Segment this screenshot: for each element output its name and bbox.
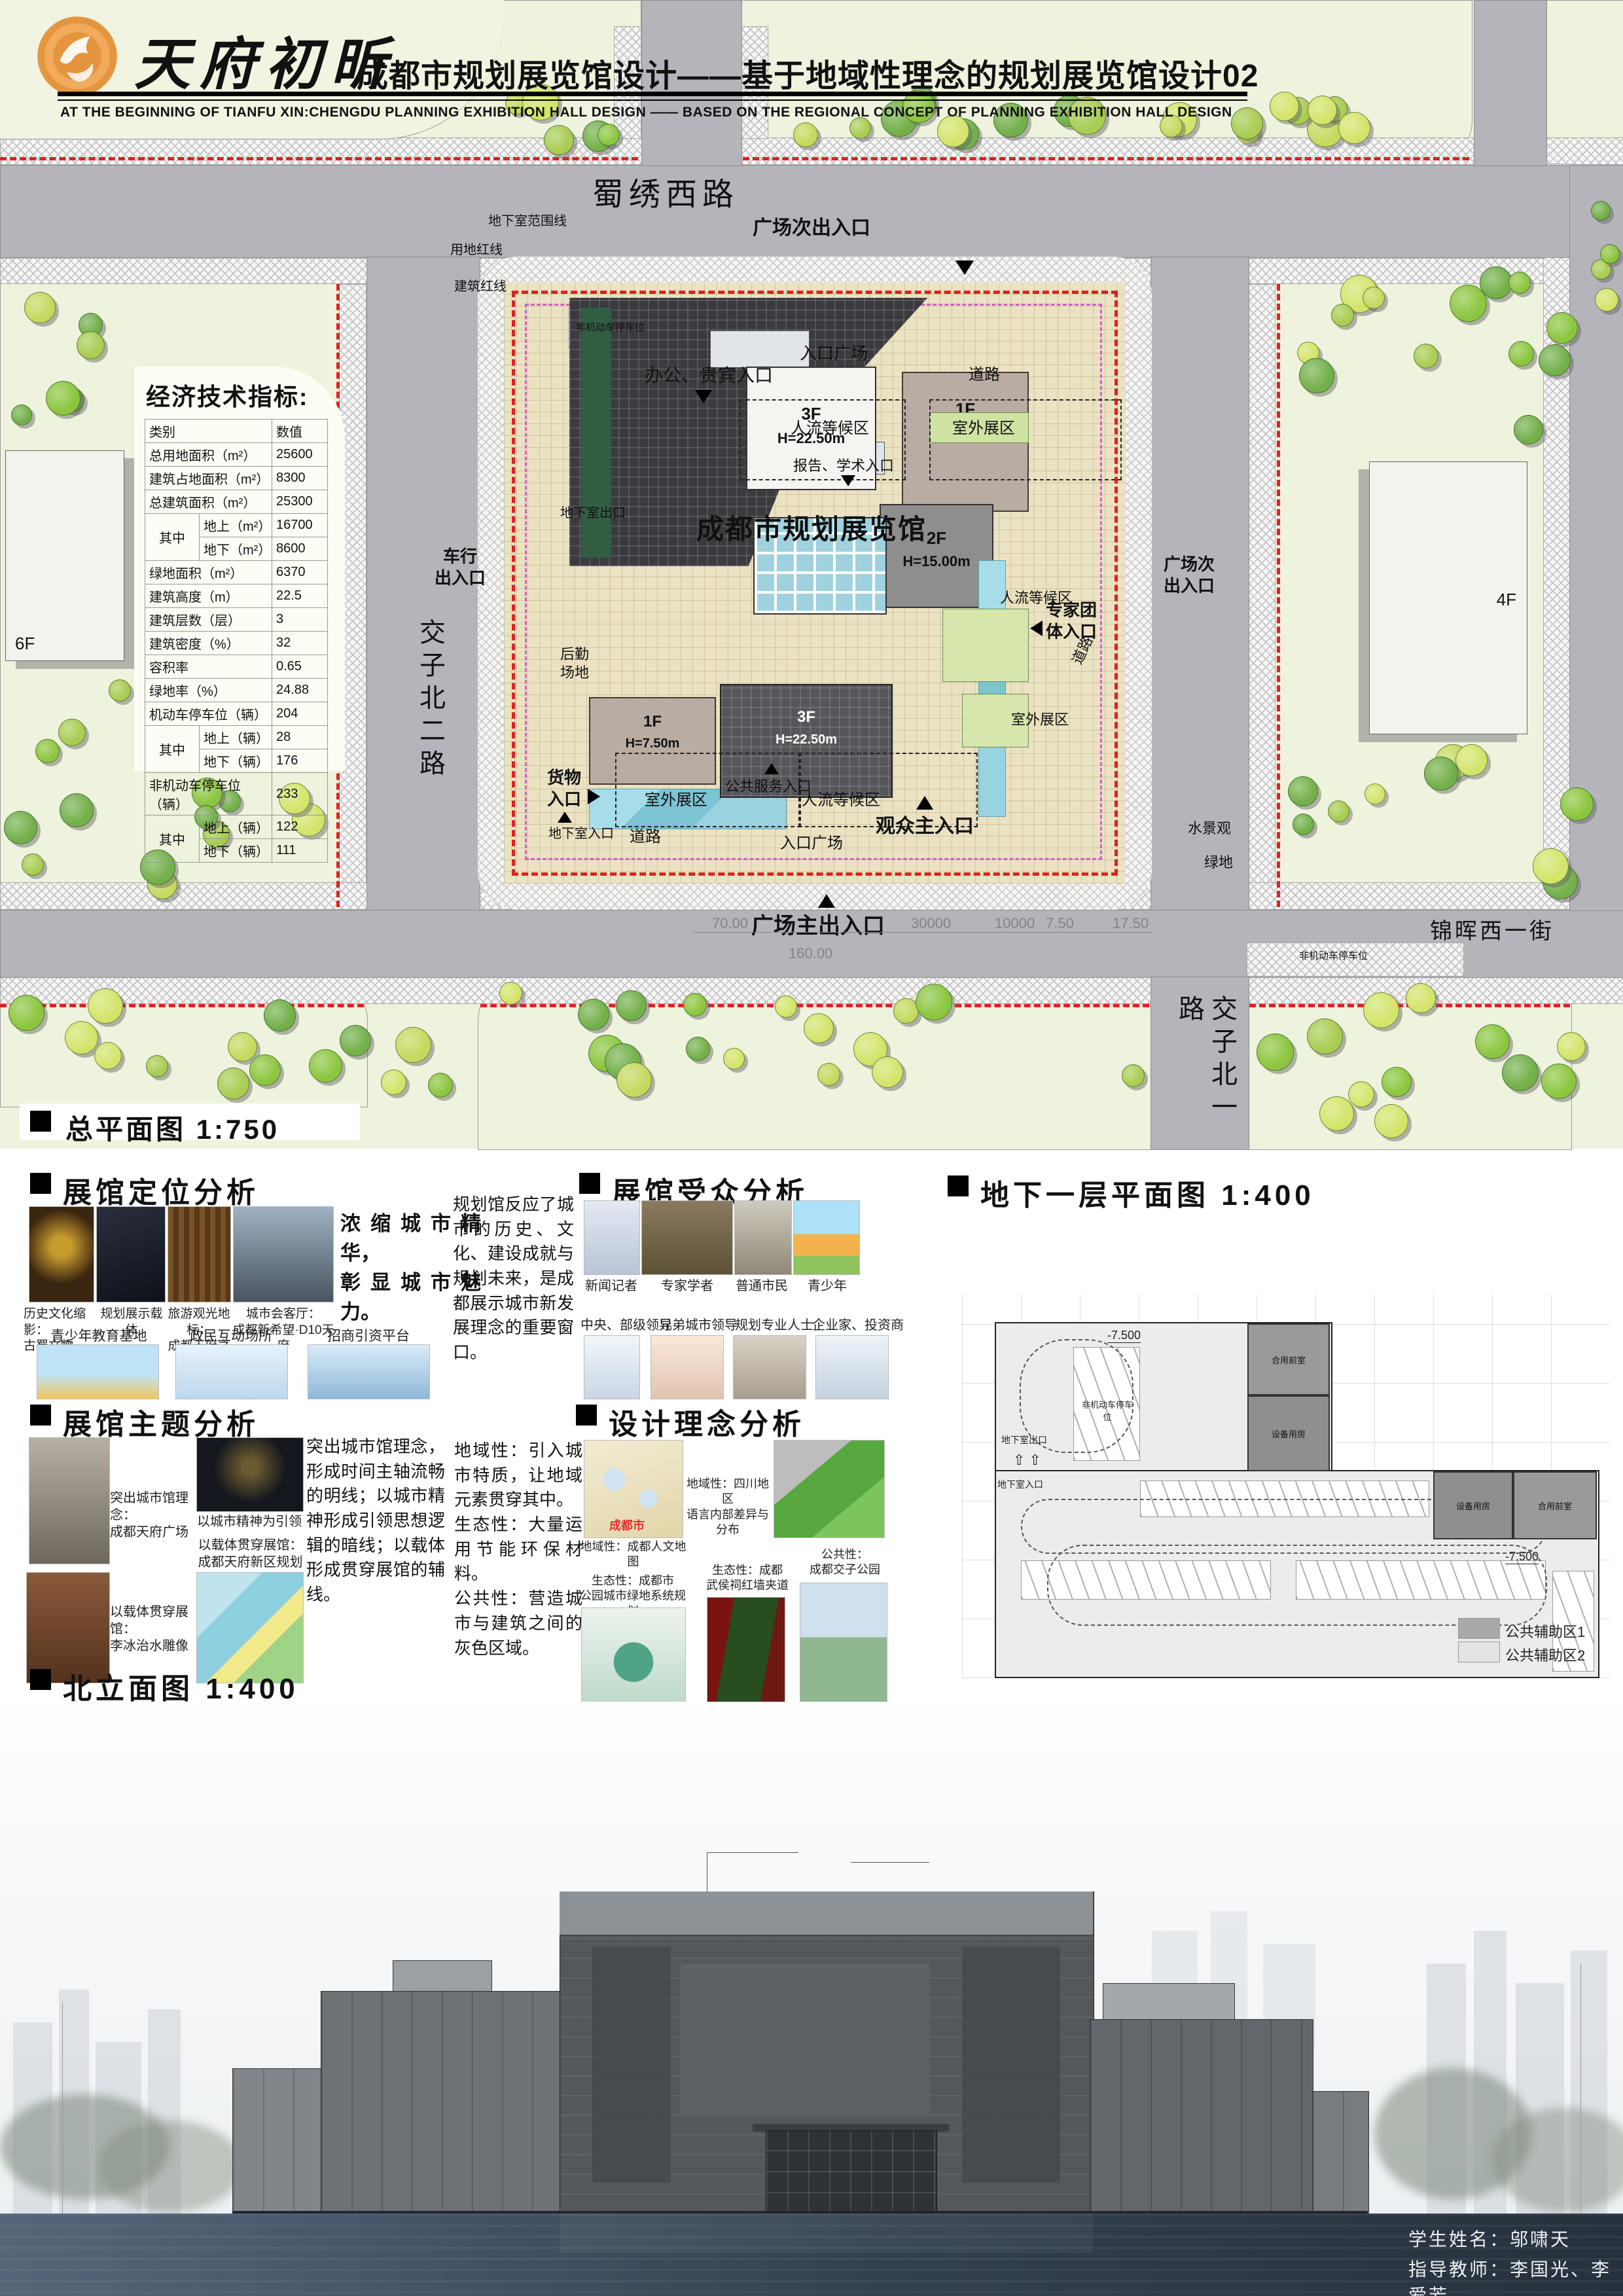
row-label: 绿地面积（m²） — [145, 561, 272, 584]
caption: 青少年教育基地 — [43, 1327, 154, 1345]
tree — [1308, 96, 1337, 125]
row-label: 非机动车停车位（辆） — [145, 773, 272, 816]
basement-title: 地下一层平面图 1:400 — [980, 1172, 1315, 1213]
tree — [775, 996, 797, 1018]
tree — [793, 122, 818, 147]
table-row: 非机动车停车位（辆）233 — [145, 773, 328, 816]
row-label: 地下（m²） — [200, 537, 272, 561]
tree — [1595, 288, 1618, 312]
tree — [1600, 244, 1620, 264]
section-bullet — [579, 1173, 600, 1194]
caption: 以载体贯穿展馆： 李冰治水雕像 — [110, 1604, 196, 1655]
legend-label: 公共辅助区1 — [1505, 1621, 1585, 1641]
tree — [1450, 285, 1487, 322]
row-value: 122 — [272, 816, 328, 839]
photo-youth-education — [37, 1344, 159, 1399]
theme-text: 突出城市馆理念，形成时间主轴流畅的明线；以城市精神形成引领思想逻辑的暗线；以载体… — [306, 1435, 445, 1607]
dimension: 10000 — [995, 915, 1035, 932]
row-value: 25600 — [272, 443, 328, 467]
tree — [381, 1069, 406, 1095]
main-building-name: 成都市规划展览馆 — [694, 507, 929, 547]
entrance-arrow-icon — [695, 390, 712, 403]
caption: 地域性：四川地区 语言内部差异与分布 — [685, 1477, 771, 1538]
row-label: 建筑高度（m） — [145, 584, 272, 608]
chengdu-tag: 成都市 — [609, 1516, 645, 1534]
tree — [22, 853, 44, 876]
dimension-line — [62, 2003, 63, 2214]
basement-exit-label: 地下室出口 — [1001, 1433, 1047, 1446]
photo-sichuan-language-map — [774, 1440, 885, 1538]
row-label: 绿地率（%） — [145, 679, 272, 702]
tree — [94, 1042, 122, 1069]
tree — [1293, 814, 1314, 835]
row-label: 地下（辆） — [200, 839, 272, 863]
photo-green-system-plan — [581, 1607, 686, 1707]
tree — [817, 1063, 840, 1086]
tree — [60, 793, 94, 827]
room-shared-lobby: 合用前室 — [1513, 1471, 1597, 1539]
water-feature-label: 水景观 — [1188, 819, 1231, 838]
elevation-wing-far-right — [1312, 2091, 1369, 2215]
plaza-main-exit-label: 广场主出入口 — [751, 912, 885, 941]
theme-title: 展馆主题分析 — [63, 1401, 259, 1443]
col-header: 数值 — [272, 420, 328, 443]
room-equipment: 设备用房 — [1433, 1471, 1513, 1539]
photo-teenagers — [793, 1200, 860, 1275]
row-value: 16700 — [272, 514, 328, 537]
row-value: 32 — [272, 632, 328, 655]
tree — [1299, 358, 1334, 393]
elevation-roof-box-right — [1103, 1983, 1235, 2022]
dimension: 30000 — [911, 915, 951, 932]
outdoor-zone-label: 室外展区 — [952, 419, 1015, 439]
table-row: 总用地面积（m²）25600 — [145, 443, 328, 467]
elevation-wing-far-left — [232, 2068, 322, 2215]
entrance-arrow-icon — [916, 796, 933, 810]
tree — [1502, 1054, 1539, 1091]
basement-exit-label: 地下室出口 — [560, 505, 626, 522]
row-value: 3 — [272, 608, 328, 632]
section-bullet — [30, 1405, 51, 1426]
legend-swatch-aux2 — [1458, 1641, 1500, 1662]
room-shared-lobby: 合用前室 — [1247, 1323, 1330, 1395]
mass-height: H=15.00m — [881, 553, 992, 570]
basement-entry-label: 地下室入口 — [548, 826, 614, 842]
photo-red-wall — [707, 1597, 785, 1707]
public-service-entry-label: 公共服务入口 — [725, 778, 811, 796]
photo-citizens — [734, 1200, 792, 1275]
tree — [1348, 1081, 1374, 1107]
row-value: 22.5 — [272, 584, 328, 608]
tree — [1331, 304, 1354, 327]
neighbor-building-4f: 4F — [1369, 461, 1527, 734]
elevation-roof-box-left — [393, 1960, 492, 1994]
drive-lane — [1047, 1545, 1547, 1626]
row-label: 机动车停车位（辆） — [145, 702, 272, 726]
bike-parking-label: 非机动车停车位 — [576, 322, 645, 334]
tree — [1424, 757, 1458, 791]
photo-chengdu-life — [96, 1206, 166, 1302]
row-value: 8300 — [272, 467, 328, 490]
tree — [65, 1021, 98, 1054]
section-bullet — [576, 1405, 597, 1426]
tree — [544, 125, 574, 155]
tree — [1533, 848, 1569, 884]
row-label: 地下（辆） — [200, 749, 272, 773]
photo-city-lounge — [233, 1206, 334, 1302]
photo-investment-platform — [308, 1344, 430, 1399]
row-value: 204 — [272, 702, 328, 726]
row-value: 24.88 — [272, 679, 328, 702]
page-title: 成都市规划展览馆设计——基于地域性理念的规划展览馆设计02 — [357, 50, 1258, 96]
tree — [77, 331, 105, 359]
tree — [1288, 776, 1318, 806]
caption: 兄弟城市领导 — [656, 1317, 741, 1334]
logistics-yard-label: 后勤 场地 — [560, 645, 589, 681]
title-rule — [58, 92, 1247, 96]
row-value: 6370 — [272, 561, 328, 584]
row-label: 地上（辆） — [200, 726, 272, 749]
mass-floor: 3F — [721, 708, 891, 726]
tree — [616, 1062, 652, 1098]
bike-parking-label: 非机动车停车位 — [1299, 950, 1368, 963]
tree — [264, 999, 296, 1031]
road-label: 道路 — [630, 827, 661, 847]
dimension: 160.00 — [789, 945, 832, 962]
tree — [723, 1048, 745, 1069]
dimension: 7.50 — [1046, 915, 1074, 932]
caption: 招商引资平台 — [319, 1327, 418, 1345]
row-group: 其中 — [145, 514, 200, 561]
caption: 生态性：成都 武侯祠红墙夹道 — [702, 1563, 793, 1594]
tree — [9, 995, 45, 1031]
neighbor-building-6f: 6F — [5, 450, 124, 661]
road-label: 道路 — [969, 365, 1000, 385]
tree — [1364, 783, 1385, 804]
tree — [916, 984, 952, 1020]
basement-entry-label: 地下室入口 — [997, 1478, 1043, 1491]
elevation-title: 北立面图 1:400 — [63, 1665, 299, 1707]
entrance-label: 广场次出入口 — [753, 216, 870, 241]
positioning-title: 展馆定位分析 — [63, 1169, 259, 1211]
green-space-label: 绿地 — [1204, 853, 1233, 872]
caption: 普通市民 — [728, 1278, 796, 1295]
waiting-zone-label: 人流等候区 — [802, 791, 880, 810]
plaza-sub-exit-right-label: 广场次 出入口 — [1164, 554, 1215, 596]
elevation-window-strip — [962, 1947, 1060, 2183]
waiting-zone-label: 人流等候区 — [1000, 589, 1072, 607]
photo-central-leaders — [584, 1335, 640, 1399]
tree — [1363, 992, 1399, 1028]
bike-parking-label: 非机动车停车位 — [1081, 1398, 1133, 1423]
row-value: 176 — [272, 749, 328, 773]
table-row: 绿地面积（m²）6370 — [145, 561, 328, 584]
dimension-line — [694, 932, 1152, 933]
tree — [88, 988, 123, 1024]
row-label: 总用地面积（m²） — [145, 443, 272, 467]
caption: 新闻记者 — [577, 1278, 645, 1295]
tree — [1546, 312, 1578, 344]
caption: 公共性： 成都交子公园 — [802, 1547, 887, 1578]
caption: 青少年 — [800, 1278, 855, 1295]
photo-culture-map: 成都市 — [584, 1440, 683, 1538]
tree — [11, 404, 32, 425]
annotation-leader — [707, 1852, 707, 1892]
audience-intro: 规划馆反应了城市的历史、文化、建设成就与规划未来，是成都展示城市新发展理念的重要… — [453, 1193, 574, 1365]
row-label: 建筑密度（%） — [145, 632, 272, 655]
caption: 专家学者 — [653, 1278, 721, 1295]
tree — [1475, 1024, 1510, 1059]
table-row: 建筑密度（%）32 — [145, 632, 328, 655]
tree — [1560, 787, 1594, 821]
tree — [597, 124, 620, 146]
level-mark: -7.500 — [1107, 1329, 1141, 1343]
concept-text: 地域性：引入城市特质，让地域元素贯穿其中。 生态性：大量运用节能环保材料。 公共… — [454, 1439, 582, 1660]
vehicle-entry-label: 车行 出入口 — [435, 546, 486, 588]
tree — [1122, 1064, 1145, 1087]
tree — [1319, 1096, 1354, 1131]
visitor-main-entry-label: 观众主入口 — [876, 814, 974, 839]
outdoor-zone-label: 室外展区 — [645, 791, 707, 810]
photo-city-spirit-plaque — [196, 1437, 304, 1512]
tree — [1338, 112, 1370, 144]
caption: 以城市精神为引领 — [196, 1513, 302, 1530]
photo-jiaozi-park — [800, 1583, 887, 1707]
elevation-wing-right — [1090, 2019, 1313, 2215]
north-elevation-drawing — [0, 1702, 1623, 2214]
road-name-east: 交子北一路 — [1173, 995, 1238, 1149]
building-floor-label: 6F — [15, 634, 35, 654]
tree — [1557, 1032, 1586, 1061]
entry-plaza-label: 入口广场 — [780, 834, 843, 853]
tree — [217, 1067, 249, 1100]
tree — [616, 990, 647, 1021]
elevation-parapet-band — [560, 1892, 1093, 1935]
tree — [578, 999, 609, 1030]
legend-label: 公共辅助区2 — [1505, 1644, 1585, 1665]
tree — [428, 1073, 453, 1098]
table-row: 绿地率（%）24.88 — [145, 679, 328, 702]
photo-entrepreneurs — [815, 1335, 889, 1399]
legend-swatch-aux1 — [1458, 1618, 1500, 1639]
elevation-window-strip — [592, 1947, 671, 2183]
caption: 地域性：成都人文地图 — [576, 1539, 690, 1570]
site-plan-title: 总平面图 1:750 — [65, 1107, 279, 1147]
entrance-arrow-icon — [588, 789, 600, 804]
planter — [942, 609, 1029, 682]
row-label: 总建筑面积（m²） — [145, 490, 272, 514]
section-bullet — [30, 1111, 51, 1132]
tree — [872, 1056, 903, 1088]
road-name-south: 锦晖西一街 — [1430, 918, 1554, 946]
entrance-canopy — [710, 331, 810, 368]
row-group: 其中 — [145, 816, 200, 863]
photo-relic — [29, 1206, 94, 1302]
road-name-west: 交子北二路 — [414, 619, 446, 782]
row-group: 其中 — [145, 726, 200, 773]
mass-floor: 1F — [590, 713, 715, 731]
tree — [4, 811, 37, 844]
entrance-arrow-icon — [1030, 620, 1043, 636]
table-row: 建筑层数（层）3 — [145, 608, 328, 632]
entrance-arrow-icon — [955, 260, 974, 275]
tree — [1414, 344, 1438, 368]
office-vip-entry-label: 办公、贵宾入口 — [645, 364, 773, 387]
land-redline-label: 用地红线 — [450, 242, 503, 259]
tree — [46, 381, 80, 416]
building-floor-label: 4F — [1497, 590, 1516, 610]
tree — [1541, 1064, 1577, 1099]
title-rule-thin — [58, 99, 1247, 101]
table-row: 建筑高度（m）22.5 — [145, 584, 328, 608]
table-row: 总建筑面积（m²）25300 — [145, 490, 328, 514]
mass-height: H=22.50m — [721, 732, 891, 747]
goods-entry-label: 货物 入口 — [547, 767, 581, 810]
watercolor-tree — [1492, 2108, 1623, 2212]
entrance-arrow-icon — [818, 894, 835, 908]
row-value: 25300 — [272, 490, 328, 514]
ramp-arrows-icon: ⇧ ⇧ — [1013, 1452, 1041, 1469]
econ-table-title: 经济技术指标: — [146, 377, 337, 412]
tree — [1374, 1104, 1408, 1138]
row-value: 233 — [272, 773, 328, 816]
photo-planning-professionals — [733, 1335, 806, 1399]
photo-tianfu-square — [29, 1437, 110, 1564]
section-bullet — [948, 1175, 969, 1196]
caption: 企业家、投资商 — [809, 1317, 907, 1334]
tree — [1539, 344, 1571, 376]
photo-experts — [641, 1200, 733, 1275]
tree — [228, 1032, 257, 1062]
tree — [249, 1054, 281, 1086]
road-name-north: 蜀绣西路 — [592, 175, 739, 215]
tree — [1307, 1018, 1343, 1054]
presentation-board: 6F 4F 3F H=22.50m 1F H=7.50m — [0, 0, 1623, 2296]
basement-extent-label: 地下室范围线 — [488, 213, 567, 230]
ground-water-band: 学生姓名：邬啸天 指导教师：李国光、李爱芳 — [0, 2214, 1623, 2296]
entrance-arrow-icon — [764, 763, 779, 774]
photo-sister-city-leaders — [651, 1335, 724, 1399]
dimension: 17.50 — [1113, 915, 1149, 932]
caption: 突出城市馆理念： 成都天府广场 — [110, 1490, 196, 1541]
tree — [804, 1013, 834, 1043]
tree — [1270, 92, 1299, 121]
tree — [395, 1027, 431, 1063]
entrance-arrow-icon — [558, 812, 572, 823]
photo-civic-interaction — [175, 1344, 288, 1399]
entry-plaza-label: 入口广场 — [800, 343, 868, 365]
elevation-wing-left — [321, 1991, 564, 2215]
dimension-line — [1580, 1964, 1581, 2214]
table-header-row: 类别数值 — [145, 420, 328, 443]
annotation-leader — [851, 1862, 929, 1863]
tree — [24, 292, 56, 323]
entrance-glazing — [766, 2130, 937, 2215]
row-value: 28 — [272, 726, 328, 749]
tree — [1257, 1033, 1294, 1071]
section-bullet — [30, 1173, 51, 1194]
tree — [1406, 983, 1436, 1013]
econ-table: 类别数值总用地面积（m²）25600建筑占地面积（m²）8300总建筑面积（m²… — [145, 419, 328, 863]
tree — [1455, 744, 1488, 776]
row-label: 地上（m²） — [200, 514, 272, 537]
row-value: 0.65 — [272, 655, 328, 679]
tree — [1508, 272, 1531, 294]
tree — [686, 1037, 710, 1061]
tree — [1508, 341, 1534, 367]
col-header: 类别 — [145, 420, 272, 443]
tree — [146, 1055, 168, 1077]
photo-journalists — [584, 1200, 640, 1275]
tree — [35, 739, 60, 763]
waiting-zone-label: 人流等候区 — [791, 419, 869, 439]
outdoor-exhibit-outline — [929, 399, 1122, 480]
tree — [309, 1049, 342, 1083]
tree — [683, 993, 707, 1016]
elevation-panel-field — [681, 1964, 929, 2114]
tree — [1382, 1067, 1412, 1097]
table-row: 其中地上（m²）16700 — [145, 514, 328, 537]
entrance-arrow-icon — [841, 475, 855, 486]
table-row: 其中地上（辆）28 — [145, 726, 328, 749]
caption: 政民互动场所 — [182, 1327, 280, 1345]
photo-lattice-landmark — [168, 1206, 231, 1302]
economic-indicator-panel: 经济技术指标: 类别数值总用地面积（m²）25600建筑占地面积（m²）8300… — [134, 367, 345, 771]
caption: 规划专业人士 — [732, 1317, 817, 1334]
logo-seal-icon — [34, 13, 120, 99]
tree — [1591, 201, 1611, 221]
annotation-leader — [707, 1852, 798, 1853]
student-name: 学生姓名：邬啸天 — [1408, 2225, 1571, 2251]
watercolor-tree — [98, 2121, 242, 2212]
tree — [109, 679, 131, 702]
mass-height: H=7.50m — [590, 736, 715, 751]
tree — [58, 719, 86, 746]
tree — [1363, 287, 1385, 309]
row-label: 地上（辆） — [200, 816, 272, 839]
row-value: 8600 — [272, 537, 328, 561]
row-label: 容积率 — [145, 655, 272, 679]
page-subtitle-en: AT THE BEGINNING OF TIANFU XIN:CHENGDU P… — [60, 105, 1248, 120]
table-row: 建筑占地面积（m²）8300 — [145, 467, 328, 490]
level-mark: -7.500 — [1505, 1550, 1539, 1564]
building-reflection — [560, 2214, 1093, 2253]
report-entry-label: 报告、学术入口 — [793, 457, 894, 475]
tree — [499, 982, 522, 1005]
row-label: 建筑层数（层） — [145, 608, 272, 632]
outdoor-zone-label: 室外展区 — [1011, 711, 1069, 729]
advisor-names: 指导教师：李国光、李爱芳 — [1408, 2255, 1623, 2296]
tree — [1328, 800, 1349, 822]
table-row: 容积率0.65 — [145, 655, 328, 679]
tree — [340, 1025, 371, 1056]
tree — [1514, 415, 1543, 444]
building-redline-label: 建筑红线 — [454, 279, 507, 295]
table-row: 机动车停车位（辆）204 — [145, 702, 328, 726]
table-row: 其中地上（辆）122 — [145, 816, 328, 839]
row-label: 建筑占地面积（m²） — [145, 467, 272, 490]
row-value: 111 — [272, 839, 328, 863]
concept-title: 设计理念分析 — [609, 1401, 805, 1443]
room-equipment: 设备用房 — [1247, 1395, 1330, 1471]
section-bullet — [30, 1669, 51, 1690]
dimension: 70.00 — [712, 915, 748, 932]
site-plan-map: 6F 4F 3F H=22.50m 1F H=7.50m — [0, 0, 1623, 1149]
